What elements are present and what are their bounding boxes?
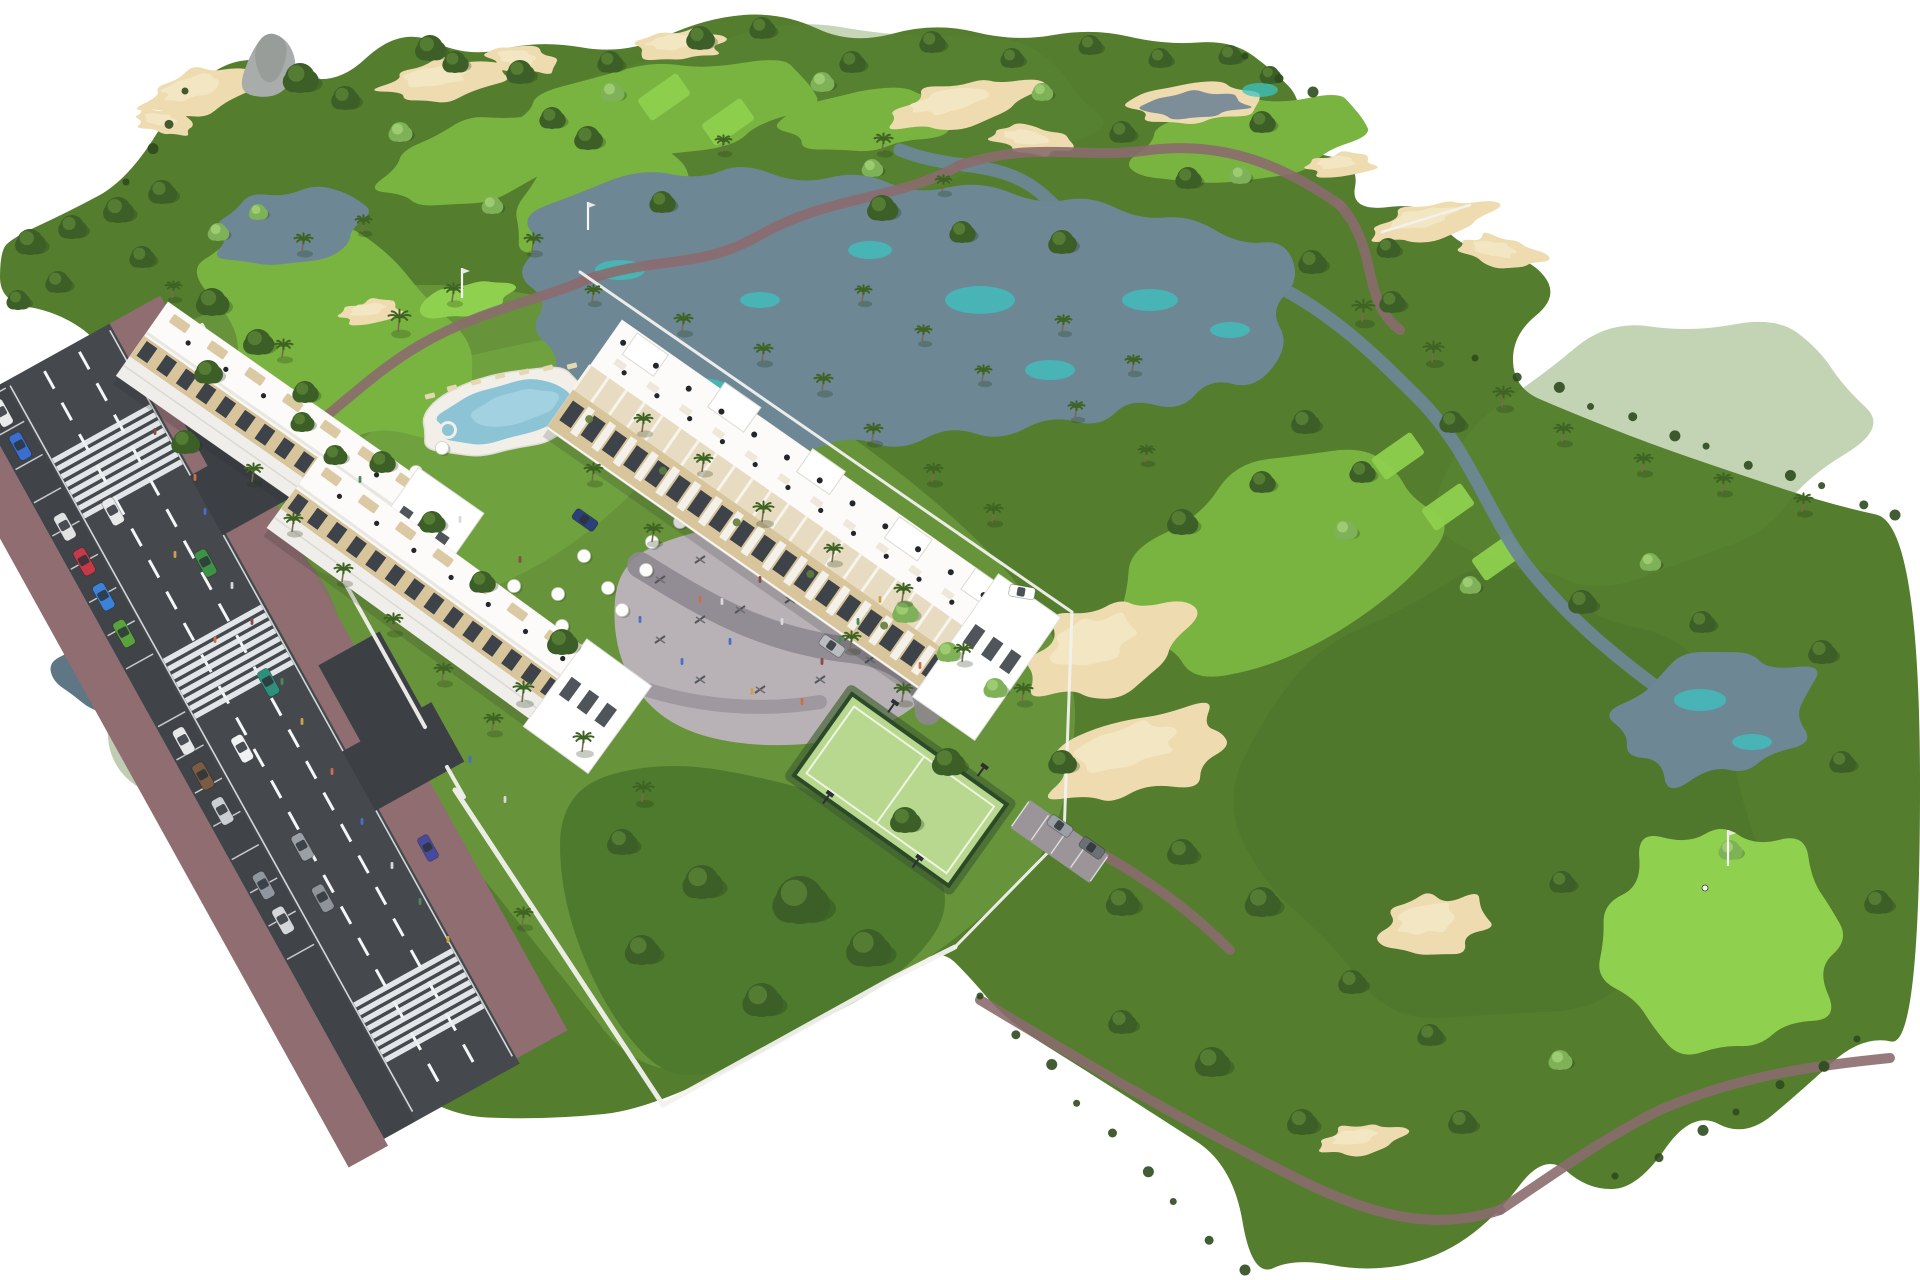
scrub-bush xyxy=(1011,1030,1020,1039)
scrub-bush xyxy=(165,120,174,129)
pedestrian xyxy=(194,474,197,481)
scrub-bush xyxy=(1818,482,1825,489)
pedestrian xyxy=(361,818,364,825)
shallow-water-patch xyxy=(740,292,780,308)
shallow-water-patch xyxy=(1122,289,1178,311)
scrub-bush xyxy=(1669,430,1680,441)
shallow-water-patch xyxy=(1732,734,1772,750)
scrub-bush xyxy=(1587,403,1594,410)
pedestrian xyxy=(519,556,522,563)
pedestrian xyxy=(459,516,462,523)
scrub-bush xyxy=(182,88,189,95)
pedestrian xyxy=(639,616,642,623)
pedestrian xyxy=(879,596,882,603)
scrub-bush xyxy=(1275,74,1284,83)
scrub-bush xyxy=(1859,500,1868,509)
pedestrian xyxy=(251,618,254,625)
scrub-bush xyxy=(1554,382,1565,393)
scrub-bush xyxy=(1733,1109,1740,1116)
pedestrian xyxy=(359,476,362,483)
scrub-bush xyxy=(1242,53,1249,60)
pedestrian xyxy=(174,551,177,558)
scrub-bush xyxy=(977,993,984,1000)
pedestrian xyxy=(204,508,207,515)
pedestrian xyxy=(699,596,702,603)
shallow-water-patch xyxy=(1210,322,1250,338)
scrub-bush xyxy=(1472,355,1479,362)
pedestrian xyxy=(729,638,732,645)
scrub-bush xyxy=(1240,1265,1251,1276)
pedestrian xyxy=(447,936,450,943)
shallow-water-patch xyxy=(945,286,1015,314)
spa-pool xyxy=(442,424,454,436)
aerial-render-stage: Aerial 3D render of a white apartment re… xyxy=(0,0,1920,1280)
pedestrian xyxy=(231,582,234,589)
scrub-bush xyxy=(1205,1236,1214,1245)
pedestrian xyxy=(857,618,860,625)
pedestrian xyxy=(331,768,334,775)
scrub-bush xyxy=(1776,1080,1785,1089)
pedestrian xyxy=(419,898,422,905)
scrub-bush xyxy=(123,179,130,186)
pedestrian xyxy=(839,636,842,643)
scrub-bush xyxy=(1698,1125,1709,1136)
scrub-bush xyxy=(1854,1036,1861,1043)
shallow-water-patch xyxy=(1674,689,1726,711)
pedestrian xyxy=(391,862,394,869)
scrub-bush xyxy=(1703,443,1710,450)
scrub-bush xyxy=(1785,470,1796,481)
pedestrian xyxy=(504,796,507,803)
pedestrian xyxy=(154,428,157,435)
scrub-bush xyxy=(1108,1129,1117,1138)
scrub-bush xyxy=(1612,1173,1619,1180)
pedestrian xyxy=(469,756,472,763)
shallow-water-patch xyxy=(1025,360,1075,380)
pedestrian xyxy=(781,618,784,625)
scrub-bush xyxy=(1890,510,1901,521)
pedestrian xyxy=(721,598,724,605)
pedestrian xyxy=(919,662,922,669)
golfer-figure xyxy=(1702,885,1708,891)
pedestrian xyxy=(214,636,217,643)
pedestrian xyxy=(281,678,284,685)
golf-resort-aerial-render: Aerial 3D render of a white apartment re… xyxy=(0,0,1920,1280)
pedestrian xyxy=(301,718,304,725)
scrub-bush xyxy=(1628,412,1637,421)
scrub-bush xyxy=(1744,461,1753,470)
pedestrian xyxy=(751,688,754,695)
shallow-water-patch xyxy=(848,241,892,259)
pedestrian xyxy=(681,658,684,665)
pedestrian xyxy=(801,698,804,705)
scrub-bush xyxy=(1073,1100,1080,1107)
scrub-bush xyxy=(1513,373,1522,382)
scrub-bush xyxy=(1143,1166,1154,1177)
pedestrian xyxy=(821,658,824,665)
golfer xyxy=(1702,885,1708,891)
pedestrian xyxy=(759,576,762,583)
shallow-water-patch xyxy=(1242,83,1278,97)
scrub-bush xyxy=(1170,1198,1177,1205)
scrub-bush xyxy=(148,143,159,154)
scrub-bush xyxy=(1308,87,1319,98)
scrub-bush xyxy=(1046,1059,1057,1070)
scrub-bush xyxy=(1655,1153,1664,1162)
scrub-bush xyxy=(1819,1061,1830,1072)
